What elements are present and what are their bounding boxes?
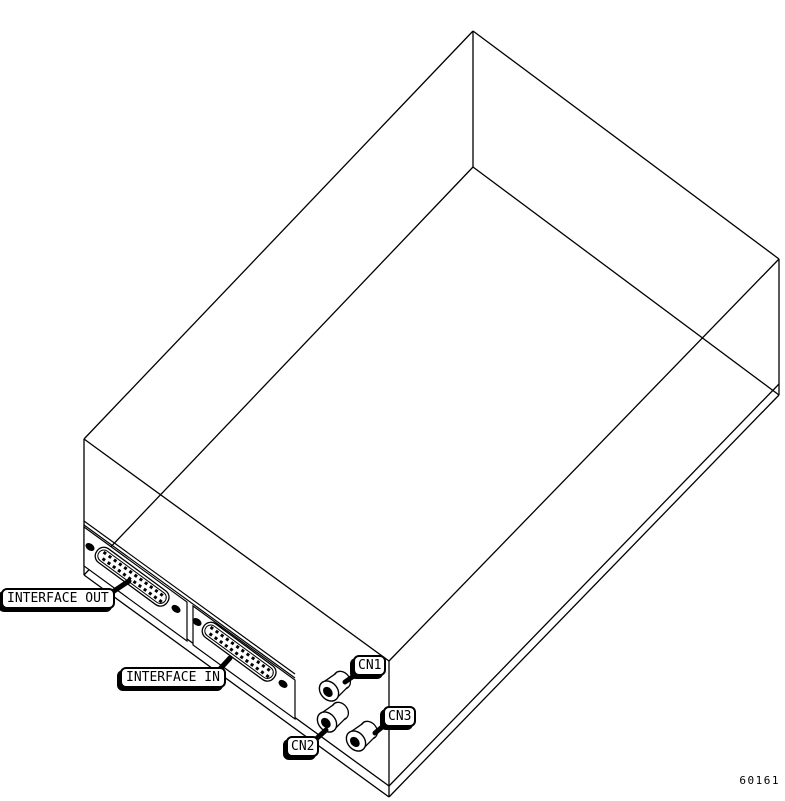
interior-bottom-edges [84,167,779,575]
figure-canvas: INTERFACE OUT INTERFACE IN CN1 CN2 CN3 6… [0,0,785,801]
callout-cn1: CN1 [353,655,386,676]
chassis-isometric-drawing [0,0,785,801]
band-top-lines [84,521,295,678]
bottom-rim-lines [84,384,779,786]
callout-interface-in: INTERFACE IN [120,667,226,688]
callout-interface-out: INTERFACE OUT [1,588,115,609]
connector-panel-band [84,521,295,719]
bnc-connector-cn1 [315,667,354,705]
bnc-connector-cn3 [342,717,381,755]
bnc-connector-cn2 [313,698,352,736]
callout-cn3: CN3 [383,706,416,727]
top-face-edges [84,31,779,661]
callout-cn2: CN2 [286,736,319,757]
figure-number: 60161 [700,774,780,787]
